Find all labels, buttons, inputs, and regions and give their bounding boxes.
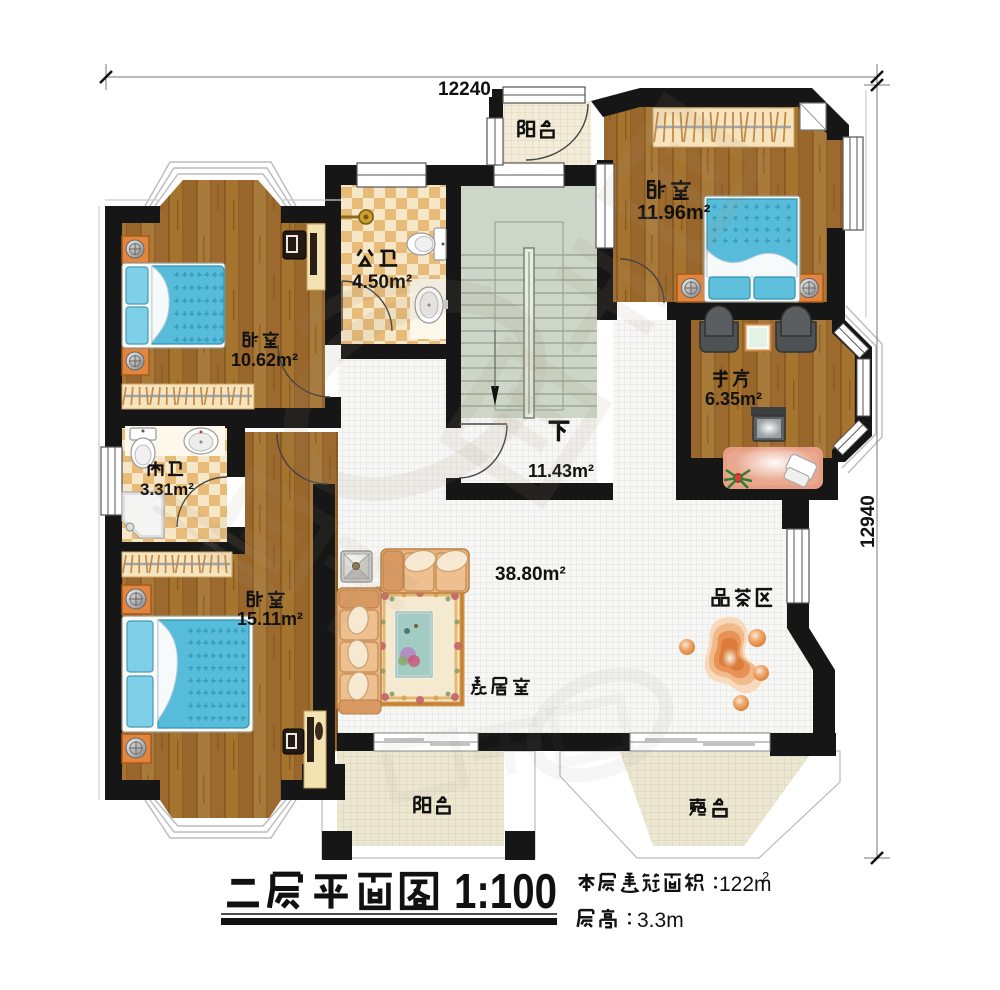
svg-text:10.62m²: 10.62m² — [231, 350, 298, 370]
svg-text:38.80m²: 38.80m² — [495, 564, 566, 585]
svg-text:12240: 12240 — [438, 79, 491, 100]
svg-text:15.11m²: 15.11m² — [237, 609, 303, 629]
svg-text:3.3m: 3.3m — [637, 909, 684, 932]
svg-text:6.35m²: 6.35m² — [705, 389, 762, 409]
svg-text:12940: 12940 — [858, 495, 879, 548]
svg-text:1:100: 1:100 — [454, 865, 557, 919]
svg-text:2: 2 — [762, 869, 769, 884]
